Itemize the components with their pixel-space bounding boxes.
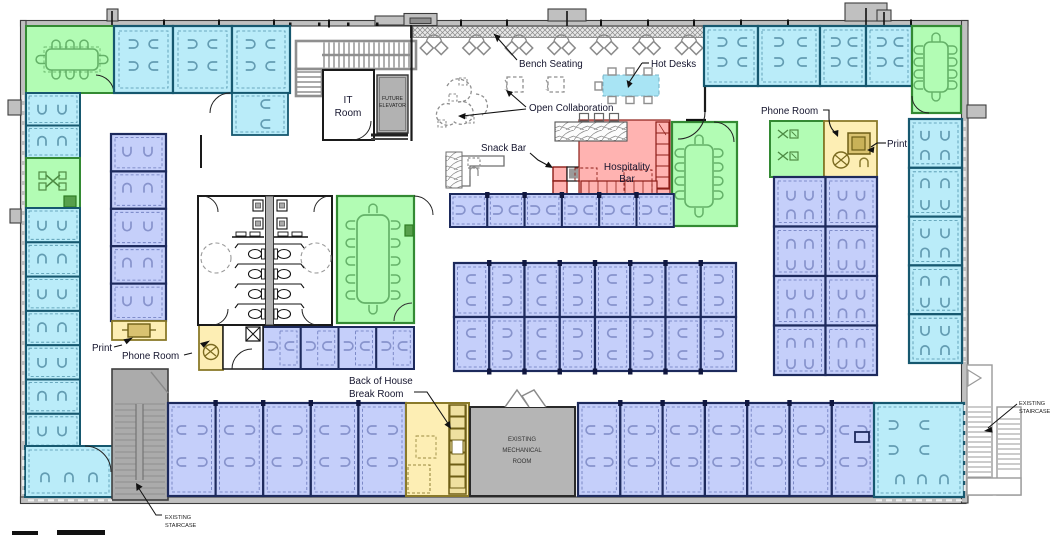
svg-text:Snack Bar: Snack Bar <box>481 143 527 154</box>
svg-text:Phone Room: Phone Room <box>122 351 179 362</box>
svg-text:Break Room: Break Room <box>349 389 403 400</box>
svg-text:Hot Desks: Hot Desks <box>651 59 696 70</box>
svg-text:Print: Print <box>92 343 112 354</box>
svg-text:Room: Room <box>335 108 362 119</box>
svg-text:MECHANICAL: MECHANICAL <box>502 448 542 454</box>
svg-text:EXISTING: EXISTING <box>1019 401 1045 407</box>
svg-text:ROOM: ROOM <box>513 459 532 465</box>
svg-text:STAIRCASE: STAIRCASE <box>1019 409 1051 415</box>
svg-text:FUTURE: FUTURE <box>382 96 404 102</box>
svg-text:Open Collaboration: Open Collaboration <box>529 103 613 114</box>
svg-text:ELEVATOR: ELEVATOR <box>379 103 406 109</box>
svg-text:STAIRCASE: STAIRCASE <box>165 523 197 529</box>
svg-text:Back of House: Back of House <box>349 376 413 387</box>
svg-text:Print: Print <box>887 139 907 150</box>
svg-text:EXISTING: EXISTING <box>165 515 191 521</box>
svg-text:Bar: Bar <box>619 174 635 185</box>
svg-text:Phone Room: Phone Room <box>761 106 818 117</box>
svg-text:IT: IT <box>344 95 353 106</box>
svg-text:Bench Seating: Bench Seating <box>519 59 583 70</box>
svg-text:EXISTING: EXISTING <box>508 437 536 443</box>
svg-text:Hospitality: Hospitality <box>604 162 650 173</box>
